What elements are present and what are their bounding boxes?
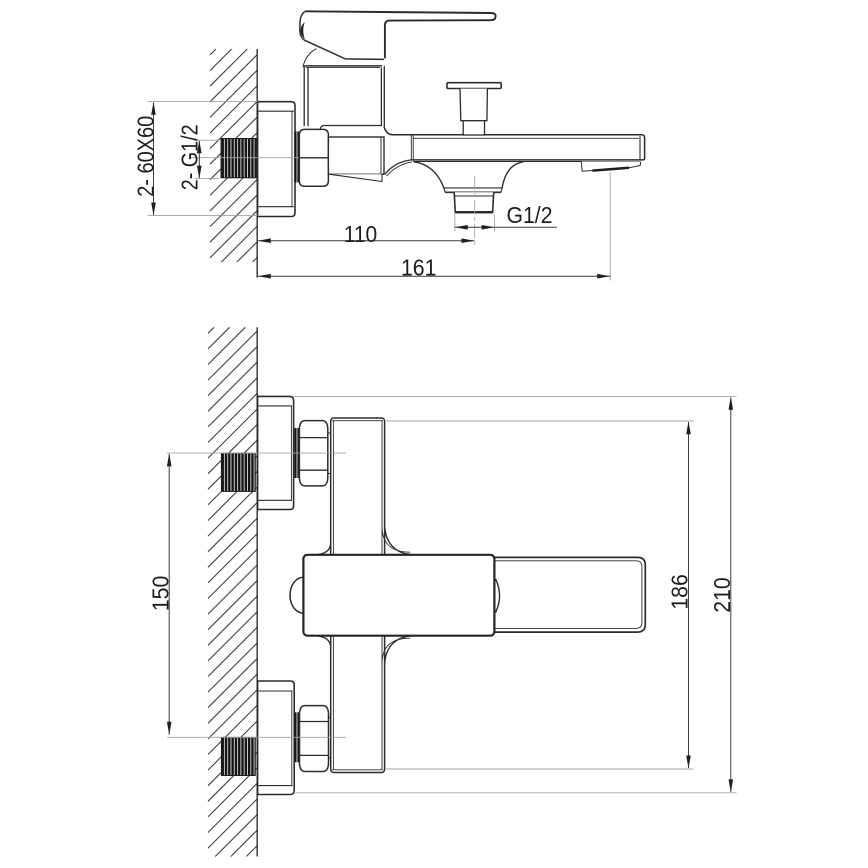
svg-text:2- 60X60: 2- 60X60 xyxy=(133,116,159,197)
svg-text:2- G1/2: 2- G1/2 xyxy=(177,124,203,190)
svg-text:G1/2: G1/2 xyxy=(507,202,553,228)
svg-text:210: 210 xyxy=(709,577,735,613)
svg-text:110: 110 xyxy=(344,221,378,247)
svg-text:186: 186 xyxy=(667,574,693,610)
svg-text:150: 150 xyxy=(147,576,173,612)
svg-text:161: 161 xyxy=(401,255,437,281)
